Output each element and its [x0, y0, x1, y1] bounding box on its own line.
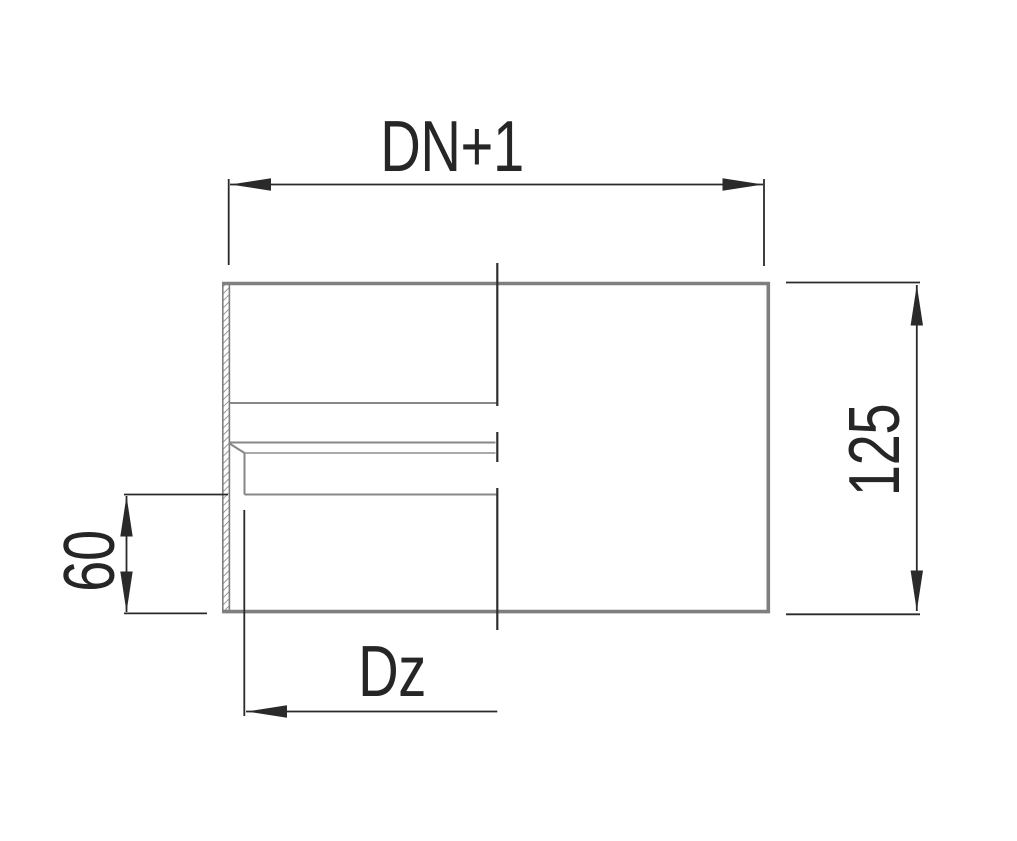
arrow-left-icon: [231, 178, 272, 190]
drawing-canvas: DN+1 125 60 Dz: [0, 0, 1017, 841]
dimension-label-125: 125: [839, 404, 911, 497]
inner-profile-lines: [230, 403, 498, 495]
dimension-top-dn1: [229, 178, 764, 266]
dimension-label-dn1: DN+1: [380, 111, 524, 183]
arrow-left-icon: [247, 705, 288, 717]
dimension-left-60: [120, 495, 228, 614]
dimension-label-60: 60: [54, 530, 126, 592]
hatched-wall: [223, 282, 230, 612]
arrow-up-icon: [911, 285, 923, 326]
arrow-right-icon: [723, 178, 764, 190]
arrow-down-icon: [911, 571, 923, 612]
dimension-label-dz: Dz: [358, 636, 426, 708]
body-outline: [222, 282, 770, 613]
